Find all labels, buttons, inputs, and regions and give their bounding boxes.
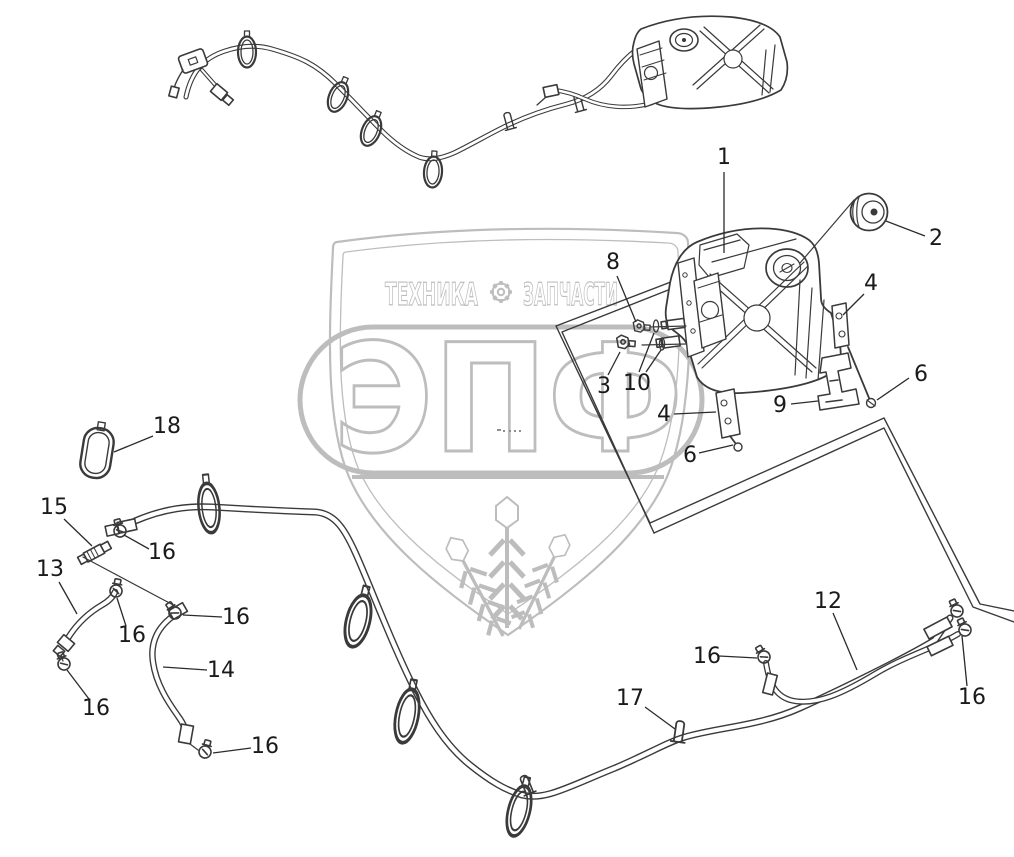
washer-nozzle [169, 48, 233, 105]
bracket-4-left [716, 389, 740, 438]
leader-line-13 [59, 582, 77, 614]
leader-line-16c [183, 615, 222, 617]
parts-diagram-page: ЭПФ ТЕХНИКА ЗАПЧАСТИ [0, 0, 1014, 857]
leader-line-14 [163, 667, 207, 670]
leader-line-6a [877, 378, 909, 400]
washer-tank-main [656, 228, 841, 393]
tank-cap [851, 194, 888, 231]
leader-line-9 [791, 401, 818, 404]
leader-line-2 [886, 221, 925, 236]
gear-icon [490, 281, 512, 303]
leader-line-16g [962, 636, 967, 686]
leader-line-17 [645, 707, 675, 729]
hose-ring-clip [391, 678, 425, 745]
hose-clamps-16 [54, 518, 973, 759]
watermark-shield: ЭПФ ТЕХНИКА ЗАПЧАСТИ [300, 229, 702, 643]
washer-hose-harness [169, 31, 652, 188]
hose-connector [543, 85, 559, 98]
hose-ring-clip [502, 775, 538, 839]
leader-line-16b [117, 598, 126, 626]
washer-hose-13 [53, 592, 115, 661]
hose-loop-18 [78, 420, 116, 480]
watermark-big-text: ЭПФ [333, 313, 683, 487]
leader-line-12 [833, 613, 857, 670]
bracket-4-right [832, 303, 849, 348]
diagram-canvas: ЭПФ ТЕХНИКА ЗАПЧАСТИ [0, 0, 1014, 857]
leader-line-16e [213, 748, 251, 753]
leader-line-18 [114, 436, 153, 452]
washer-hose-14 [152, 603, 198, 750]
washer-tank-assembled-view [633, 16, 788, 108]
leader-line-6b [699, 445, 733, 453]
washer-hose-long [105, 474, 952, 839]
hose-ring-clip [238, 31, 256, 68]
leader-line-15 [64, 519, 92, 546]
wheat-icon [438, 497, 577, 643]
leader-line-16a [124, 535, 149, 549]
leader-line-16f [719, 656, 757, 658]
screw-6-mid [730, 436, 742, 451]
watermark-title-left: ТЕХНИКА [385, 277, 478, 313]
tank-cap-small [670, 29, 698, 51]
hose-fitting-15 [77, 540, 112, 565]
bracket-9 [818, 353, 859, 410]
leader-line-16d [67, 670, 89, 699]
